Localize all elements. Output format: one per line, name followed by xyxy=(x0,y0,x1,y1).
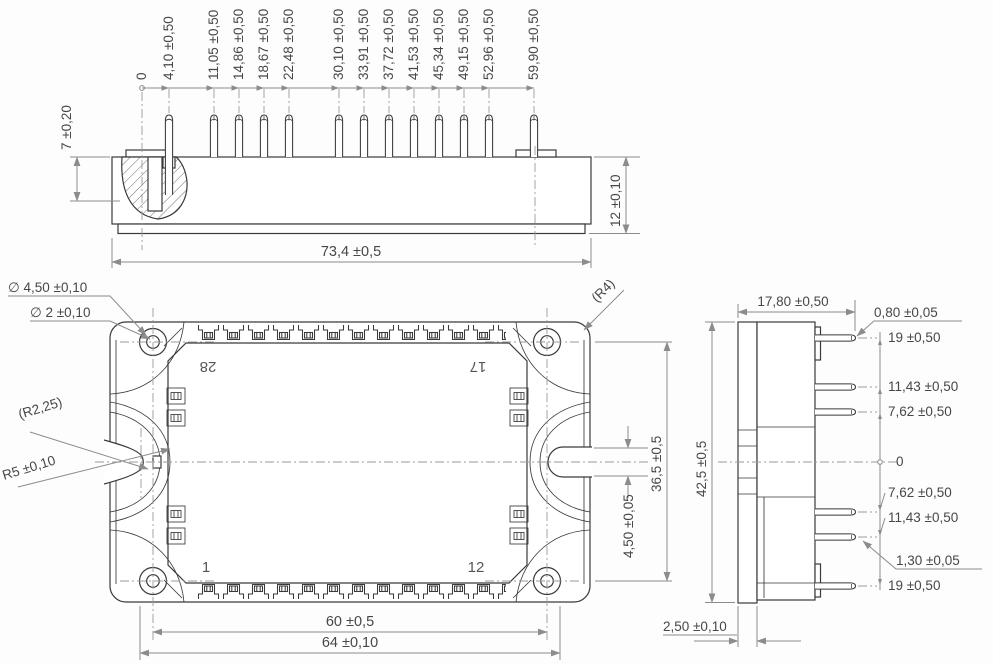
engineering-drawing-canvas: 0 4,10 ±0,50 11,05 ±0,50 14,86 ±0,50 18,… xyxy=(0,0,993,664)
ordinate-label: 4,10 ±0,50 xyxy=(161,16,176,80)
top-view: 28 17 1 12 ∅ 4,50 ±0,10 ∅ 2 ±0,10 (R4) (… xyxy=(0,276,672,660)
front-ordinate-dims: 0 4,10 ±0,50 11,05 ±0,50 14,86 ±0,50 18,… xyxy=(134,9,541,91)
pin-slot-row-top xyxy=(196,325,506,343)
dim-notch-small-label: (R2,25) xyxy=(16,394,63,422)
ordinate-label: 14,86 ±0,50 xyxy=(231,9,246,80)
dim-height-label: 42,5 ±0,5 xyxy=(694,441,709,497)
pin-number-28: 28 xyxy=(200,358,217,375)
dim-hole-span-v-label: 36,5 ±0,5 xyxy=(649,436,664,492)
front-view: 0 4,10 ±0,50 11,05 ±0,50 14,86 ±0,50 18,… xyxy=(59,9,640,268)
dim-front-width: 73,4 ±0,5 xyxy=(112,238,591,268)
ordinate-label: 30,10 ±0,50 xyxy=(331,9,346,80)
ordinate-label: 49,15 ±0,50 xyxy=(456,9,471,80)
ordinate-label: 33,91 ±0,50 xyxy=(356,9,371,80)
dim-hole-span-h-label: 60 ±0,5 xyxy=(326,614,374,630)
dim-hole-outer-label: ∅ 4,50 ±0,10 xyxy=(8,280,87,295)
dim-baseplate-label: 2,50 ±0,10 xyxy=(663,619,727,634)
drawing-page: 0 4,10 ±0,50 11,05 ±0,50 14,86 ±0,50 18,… xyxy=(0,0,993,664)
dim-front-width-label: 73,4 ±0,5 xyxy=(321,244,381,260)
row-label-19-bottom: 19 ±0,50 xyxy=(888,578,940,593)
ordinate-label: 41,53 ±0,50 xyxy=(406,9,421,80)
row-label-zero: 0 xyxy=(896,454,904,469)
row-label-1143-top: 11,43 ±0,50 xyxy=(888,379,958,394)
front-baseplate xyxy=(118,224,585,234)
front-pins xyxy=(210,115,537,157)
side-pin-shroud-top xyxy=(815,327,821,360)
ordinate-label: 37,72 ±0,50 xyxy=(381,9,396,80)
front-left-pedestal xyxy=(126,150,168,157)
pin-number-1: 1 xyxy=(202,559,210,576)
side-ordinate xyxy=(878,332,883,590)
dim-pin-height: 7 ±0,20 xyxy=(59,105,120,201)
front-pin-long xyxy=(165,115,172,195)
ordinate-label: 22,48 ±0,50 xyxy=(281,9,296,80)
pin-number-17: 17 xyxy=(470,358,487,375)
side-body xyxy=(757,322,815,600)
ordinate-label: 52,96 ±0,50 xyxy=(481,9,496,80)
pin-number-12: 12 xyxy=(468,559,485,576)
ordinate-label: 45,34 ±0,50 xyxy=(431,9,446,80)
dim-slot-width: 4,50 ±0,05 xyxy=(594,426,648,558)
row-label-762-top: 7,62 ±0,50 xyxy=(888,404,952,419)
side-baseplate xyxy=(738,322,757,603)
dim-hole-inner-label: ∅ 2 ±0,10 xyxy=(30,305,90,320)
side-view: 17,80 ±0,50 0,80 ±0,05 19 ±0,50 11,43 ±0… xyxy=(663,294,982,647)
dim-outer-width-label: 64 ±0,10 xyxy=(322,635,378,651)
side-pin-shroud-bottom xyxy=(815,564,821,597)
row-label-762-bottom: 7,62 ±0,50 xyxy=(888,485,952,500)
dim-depth-label: 17,80 ±0,50 xyxy=(757,294,828,309)
dim-hole-span-h: 60 ±0,5 xyxy=(153,614,547,632)
ordinate-label: 59,90 ±0,50 xyxy=(526,9,541,80)
row-label-19-top: 19 ±0,50 xyxy=(888,330,940,345)
dim-baseplate: 2,50 ±0,10 xyxy=(663,606,801,647)
dim-body-height: 12 ±0,10 xyxy=(589,157,640,234)
dim-pin-height-label: 7 ±0,20 xyxy=(59,105,74,150)
ordinate-label: 0 xyxy=(134,72,149,80)
row-label-130: 1,30 ±0,05 xyxy=(896,553,960,568)
dim-height: 42,5 ±0,5 xyxy=(694,322,735,603)
dim-notch-radius-label: R5 ±0,10 xyxy=(0,453,57,483)
dim-body-height-label: 12 ±0,10 xyxy=(608,175,623,227)
dim-slot-width-label: 4,50 ±0,05 xyxy=(621,494,636,558)
dim-pin-thickness-top-label: 0,80 ±0,05 xyxy=(874,305,938,320)
ordinate-label: 11,05 ±0,50 xyxy=(206,10,221,80)
row-label-1143-bottom: 11,43 ±0,50 xyxy=(888,510,958,525)
dim-corner-radius: (R4) xyxy=(584,276,624,330)
pin-slot-row-bottom xyxy=(196,581,506,599)
ordinate-label: 18,67 ±0,50 xyxy=(256,9,271,80)
